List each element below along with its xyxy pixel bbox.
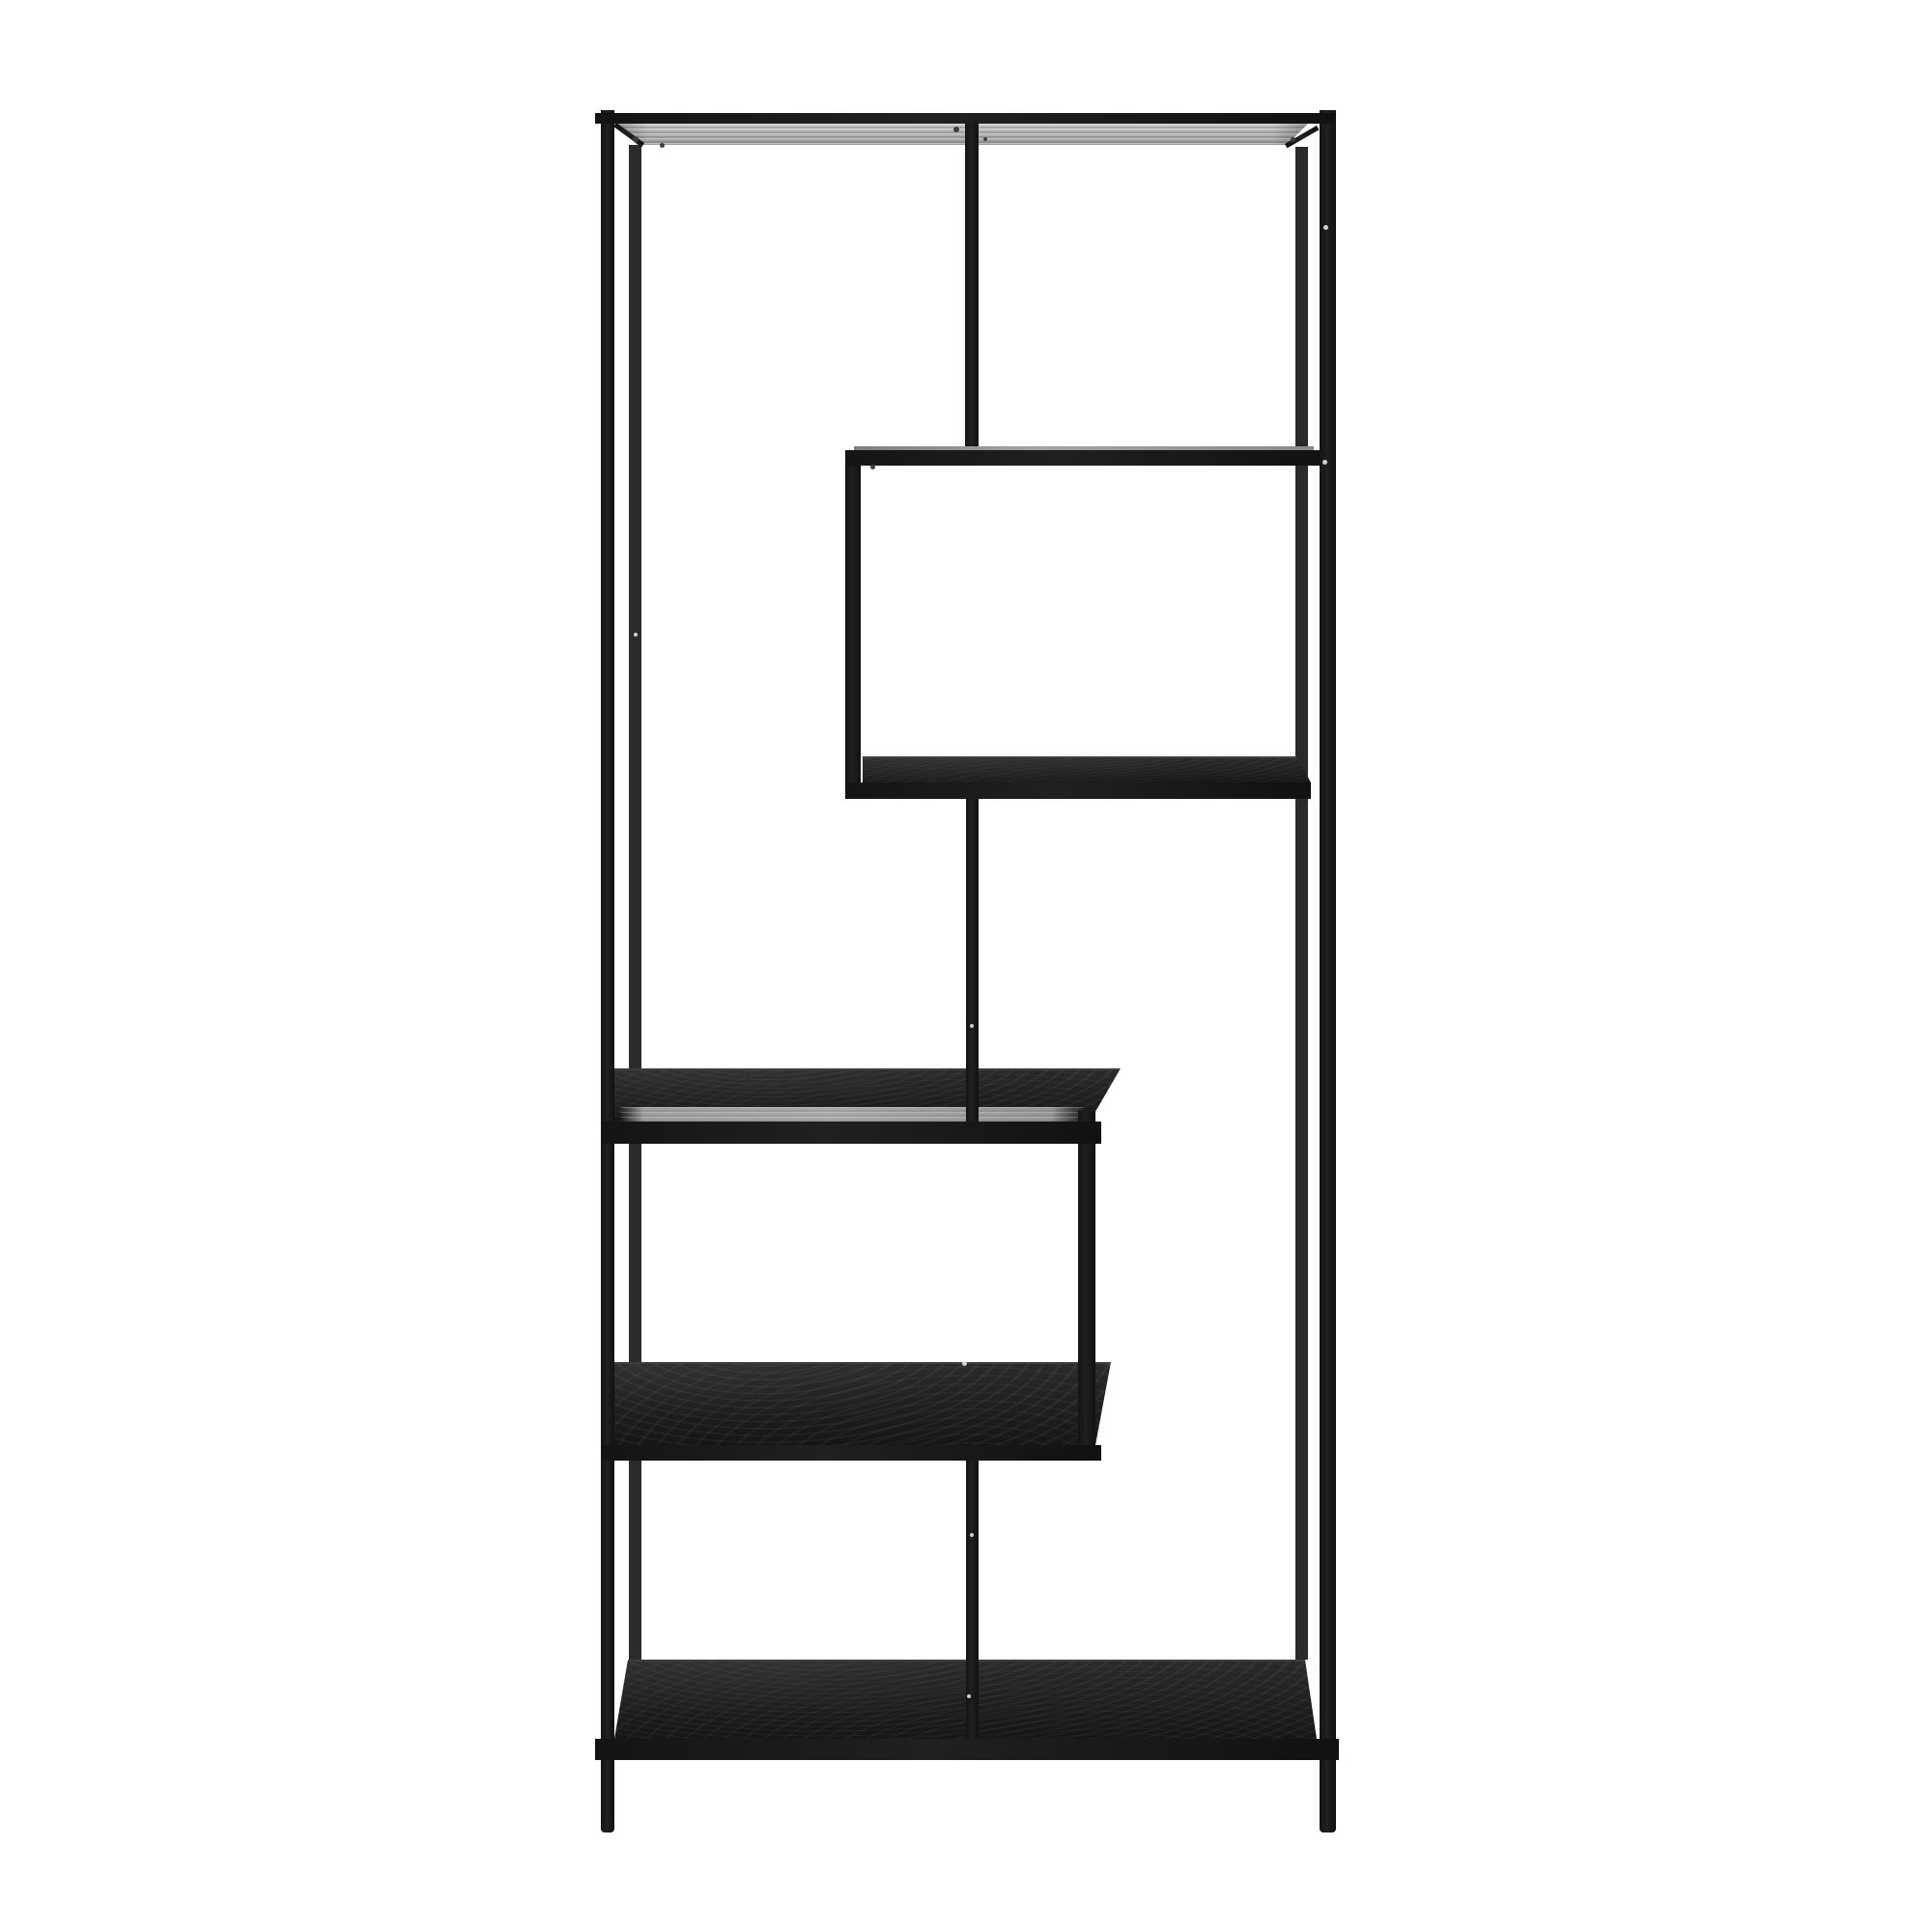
lower-middle-divider: [966, 1461, 979, 1743]
top-panel-underside: [614, 124, 1308, 145]
shelf1-front-bar: [845, 450, 1320, 466]
screw-shelf1-corner: [870, 465, 875, 469]
shelf3-front-sheen: [620, 1107, 1084, 1122]
screw-top-left-b: [660, 143, 665, 148]
screw-top-right: [1291, 137, 1295, 142]
screwhole-right-post-a: [1323, 225, 1328, 230]
screwhole-divider-b: [970, 1533, 974, 1537]
middle-divider: [966, 798, 979, 1126]
back-right-leg: [1295, 147, 1308, 1660]
shelf2-front-bar: [845, 782, 1311, 799]
screw-top-middle-b: [983, 137, 987, 141]
lower-box-right-frame: [1078, 1111, 1095, 1461]
screw-top-middle-a: [953, 127, 959, 132]
screwhole-bottom-panel: [967, 1694, 971, 1698]
screwhole-right-post-b: [1322, 460, 1327, 465]
right-post: [1320, 110, 1336, 1833]
screwhole-shelf4-edge: [962, 1361, 967, 1366]
shelf4-panel-top: [614, 1362, 1111, 1445]
shelf4-front-bar: [601, 1445, 1101, 1461]
screwhole-back-left-leg: [634, 633, 638, 637]
upper-middle-divider: [965, 124, 979, 450]
screwhole-divider-a: [970, 1024, 974, 1028]
left-post: [601, 110, 614, 1833]
screw-top-left-a: [633, 136, 639, 142]
top-front-bar: [595, 113, 1336, 124]
shelf3-front-bar: [601, 1122, 1101, 1144]
upper-box-left-frame: [845, 450, 861, 799]
product-photo: [0, 0, 1932, 1932]
bottom-front-bar: [595, 1739, 1339, 1760]
shelf2-panel-top: [863, 756, 1311, 782]
